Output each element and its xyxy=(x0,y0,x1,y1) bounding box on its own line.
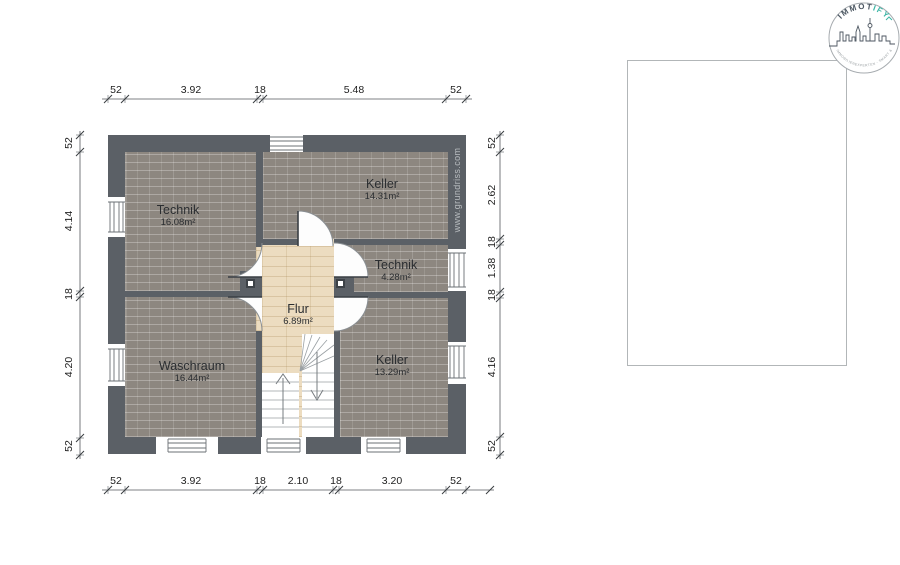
dim-label: 3.92 xyxy=(181,475,201,487)
room-label-flur: Flur 6.89m² xyxy=(283,303,313,327)
dim-label: 2.10 xyxy=(288,475,308,487)
dim-label: 52 xyxy=(450,84,462,96)
dim-label: 52 xyxy=(110,475,122,487)
room-name: Technik xyxy=(375,259,417,273)
dim-label: 52 xyxy=(63,440,75,452)
door-keller-1 xyxy=(298,211,333,246)
room-name: Technik xyxy=(157,204,199,218)
room-label-technik-2: Technik 4.28m² xyxy=(375,259,417,283)
window-bottom-2 xyxy=(261,437,306,454)
dim-label: 18 xyxy=(254,475,266,487)
room-area: 13.29m² xyxy=(375,368,410,378)
dim-label: 2.62 xyxy=(486,185,498,205)
logo-tagline: IHRE IMMOBILIENEXPERTEN - SMART & FAIR xyxy=(0,0,894,67)
stair-treads xyxy=(262,334,334,427)
door-technik-2 xyxy=(334,243,368,277)
room-label-technik-1: Technik 16.08m² xyxy=(157,204,199,228)
dimension-lines xyxy=(76,95,504,494)
dim-label: 18 xyxy=(486,236,498,248)
room-area: 16.08m² xyxy=(157,218,199,228)
dim-label: 18 xyxy=(486,289,498,301)
window-right-upper xyxy=(448,249,466,291)
room-area: 6.89m² xyxy=(283,317,313,327)
dim-label: 4.16 xyxy=(486,357,498,377)
dim-label: 3.20 xyxy=(382,475,402,487)
dim-label: 52 xyxy=(486,440,498,452)
room-area: 4.28m² xyxy=(375,273,417,283)
watermark-website: www.grundriss.com xyxy=(452,148,462,233)
window-left-lower xyxy=(108,344,125,386)
room-name: Flur xyxy=(283,303,313,317)
room-label-keller-2: Keller 13.29m² xyxy=(375,354,410,378)
window-top xyxy=(270,135,303,152)
dim-label: 4.14 xyxy=(63,211,75,231)
dim-label: 52 xyxy=(110,84,122,96)
room-area: 14.31m² xyxy=(365,192,400,202)
immotify-logo: IMMOTIFY IHRE IMMOBILIENEXPERTEN - SMART… xyxy=(0,0,899,73)
window-left-upper xyxy=(108,197,125,237)
room-name: Keller xyxy=(365,178,400,192)
room-name: Keller xyxy=(375,354,410,368)
dim-label: 18 xyxy=(330,475,342,487)
room-label-waschraum: Waschraum 16.44m² xyxy=(159,360,225,384)
room-label-keller-1: Keller 14.31m² xyxy=(365,178,400,202)
window-bottom-1 xyxy=(156,437,218,454)
stair-direction-arrows xyxy=(276,352,323,424)
dim-label: 3.92 xyxy=(181,84,201,96)
room-area: 16.44m² xyxy=(159,374,225,384)
dim-label: 5.48 xyxy=(344,84,364,96)
window-right-lower xyxy=(448,342,466,384)
dim-label: 52 xyxy=(450,475,462,487)
dim-label: 52 xyxy=(486,137,498,149)
floorplan-page: IMMOTIFY IHRE IMMOBILIENEXPERTEN - SMART… xyxy=(0,0,900,565)
dim-label: 18 xyxy=(254,84,266,96)
door-technik-1 xyxy=(228,243,262,277)
door-keller-2 xyxy=(334,297,368,331)
door-waschraum xyxy=(228,297,262,331)
room-name: Waschraum xyxy=(159,360,225,374)
dim-label: 18 xyxy=(63,288,75,300)
dim-label: 1.38 xyxy=(486,258,498,278)
dim-label: 4.20 xyxy=(63,357,75,377)
dim-label: 52 xyxy=(63,137,75,149)
window-bottom-3 xyxy=(361,437,406,454)
